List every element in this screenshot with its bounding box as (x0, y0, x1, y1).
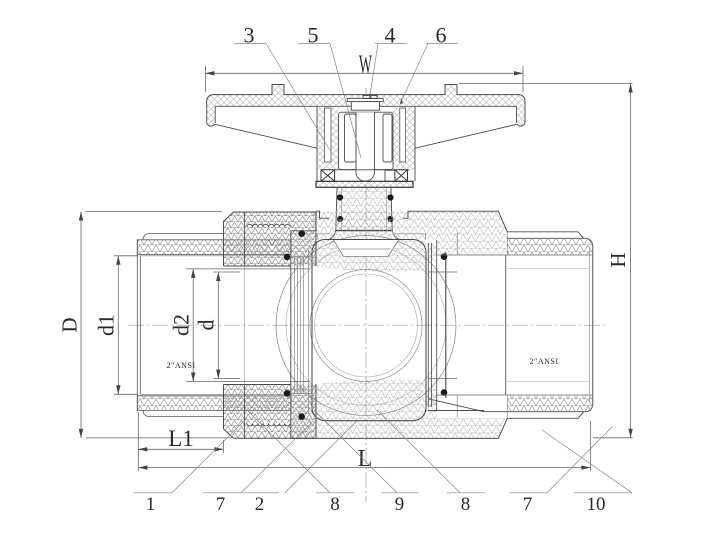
svg-text:L1: L1 (168, 426, 194, 451)
svg-text:7: 7 (216, 494, 226, 515)
svg-text:2″ANSI: 2″ANSI (530, 357, 559, 366)
svg-text:2″ANSI: 2″ANSI (167, 361, 196, 370)
svg-text:d2: d2 (169, 314, 194, 336)
svg-text:d: d (194, 320, 219, 331)
svg-text:8: 8 (330, 494, 340, 515)
svg-text:7: 7 (523, 494, 533, 515)
svg-text:5: 5 (308, 23, 319, 48)
svg-text:10: 10 (587, 494, 606, 515)
svg-text:3: 3 (244, 23, 255, 48)
svg-text:d1: d1 (94, 314, 119, 336)
svg-text:H: H (606, 252, 630, 267)
svg-text:W: W (359, 51, 372, 80)
svg-text:4: 4 (385, 23, 396, 48)
svg-text:9: 9 (395, 494, 405, 515)
svg-text:1: 1 (146, 494, 156, 515)
svg-text:8: 8 (461, 494, 471, 515)
svg-text:6: 6 (436, 23, 447, 48)
svg-text:L: L (358, 446, 373, 472)
svg-text:2: 2 (255, 494, 265, 515)
svg-text:D: D (58, 317, 82, 332)
